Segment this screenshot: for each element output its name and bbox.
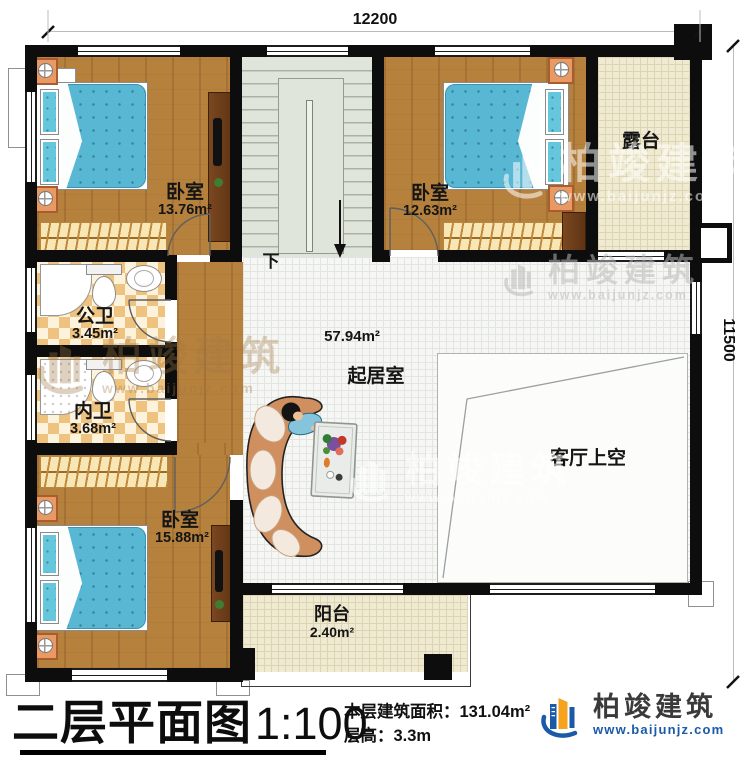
toilet-bowl [92,276,116,308]
floor-area-label: 本层建筑面积： [344,703,460,721]
column [243,648,255,680]
window [25,375,37,440]
room-label-bedroom-3: 卧室 [148,511,212,531]
room-area-bedroom-1: 13.76m² [145,203,225,218]
nightstand [548,57,574,84]
floor-plan-page: 12200 11500 卧室 13.76m² 卧室 12.63m² 露台 公卫 … [0,0,750,760]
nightstand [548,185,574,212]
wall [210,250,242,262]
sliding-door [272,583,403,595]
pillow [41,140,58,184]
toilet-tank [86,264,122,275]
room-area-bedroom-3: 15.88m² [142,531,222,546]
room-label-ensuite-bathroom: 内卫 [58,402,128,422]
room-label-balcony: 阳台 [300,605,364,624]
brand-name: 柏竣建筑 [593,693,724,723]
stair-direction-label: 下 [258,253,284,271]
lamp-icon [38,638,53,653]
wall [165,255,177,300]
wardrobe [40,456,168,488]
floor-area-value: 131.04m² [460,703,531,721]
room-label-terrace: 露台 [613,132,669,152]
brand-logo-icon [536,687,586,743]
pillow [41,90,58,134]
wall [230,45,242,262]
wall [655,583,702,595]
wall [438,250,598,262]
tv [215,550,223,592]
terrace-floor [598,57,690,250]
lamp-icon [38,63,53,78]
floor-height-value: 3.3m [394,727,432,745]
sink [126,360,162,387]
lamp-icon [554,190,569,205]
hallway-floor [177,262,243,455]
window [25,268,37,332]
window [78,45,180,57]
window [25,92,37,182]
room-area-living: 57.94m² [310,329,394,345]
plan-stats: 本层建筑面积：131.04m² 层高：3.3m [344,701,530,749]
room-label-bedroom-1: 卧室 [150,183,220,203]
room-area-public-bathroom: 3.45m² [57,327,133,342]
window [598,250,664,262]
column [424,654,452,680]
window [435,45,530,57]
plant [215,600,224,609]
room-area-bedroom-2: 12.63m² [392,204,468,219]
floor-area-line: 本层建筑面积：131.04m² [344,701,530,725]
toilet-bowl [92,371,116,403]
window [690,282,702,334]
plan-title: 二层平面图 [12,696,252,749]
floor-height-line: 层高：3.3m [344,725,530,749]
wall [372,45,384,262]
pillow [546,90,563,134]
dimension-height: 11500 [717,305,737,375]
terrace-door [696,223,732,263]
tv [213,118,222,166]
dimension-width: 12200 [340,11,410,29]
room-label-bedroom-2: 卧室 [398,184,462,204]
wall [25,668,72,682]
pillow [41,581,58,623]
dimension-line-top [48,31,700,32]
toilet-tank [86,359,122,370]
pillow [546,140,563,184]
window [25,528,37,622]
lamp-icon [38,500,53,515]
window [72,668,167,682]
lamp-icon [38,191,53,206]
room-label-living: 起居室 [338,367,414,387]
window [490,583,655,595]
wall [25,345,177,357]
plan-title-block: 二层平面图1:100 [12,684,368,753]
wall [403,583,490,595]
title-underline [20,750,326,755]
wall [25,250,168,262]
room-area-balcony: 2.40m² [300,625,364,640]
floor-height-label: 层高： [344,727,394,745]
window [267,45,348,57]
room-area-ensuite-bathroom: 3.68m² [55,422,131,437]
pillow [41,533,58,575]
brand-website: www.baijunjz.com [593,722,724,737]
room-label-living-void: 客厅上空 [538,449,638,469]
wall [372,250,390,262]
sink [126,265,162,292]
room-label-public-bathroom: 公卫 [60,307,130,327]
brand-block: 柏竣建筑 www.baijunjz.com [536,687,724,743]
stair-handrail [306,100,313,252]
stair-treads-left [242,142,278,254]
wall [25,443,170,455]
wall [237,583,272,595]
lamp-icon [554,62,569,77]
wall [586,45,598,262]
column [674,24,712,60]
